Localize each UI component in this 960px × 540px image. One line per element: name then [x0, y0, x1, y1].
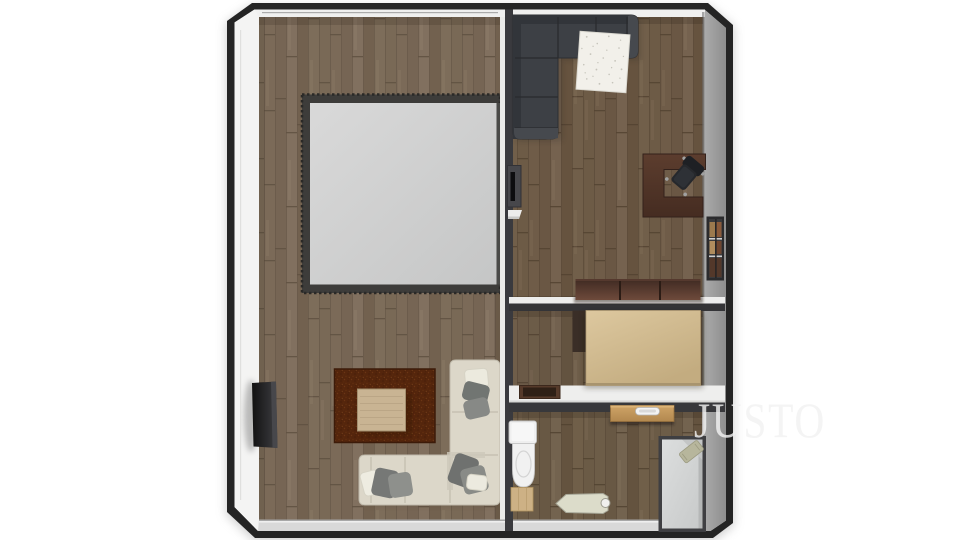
- svg-text:JUSTO: JUSTO: [694, 392, 826, 448]
